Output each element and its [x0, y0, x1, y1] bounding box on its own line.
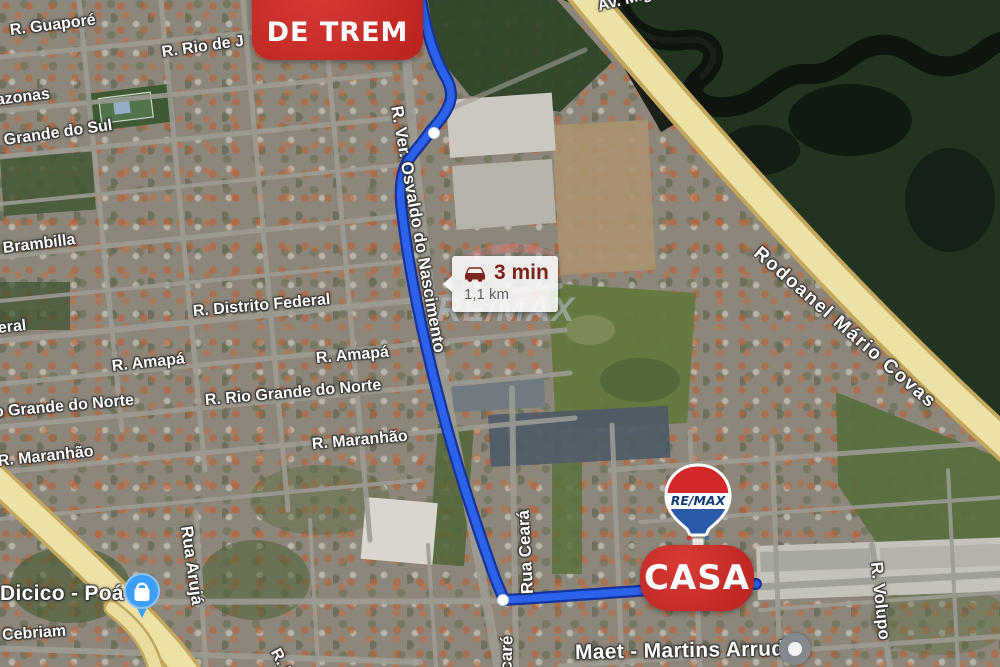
pond: [788, 84, 912, 156]
destination-badge-label: CASA: [644, 558, 750, 598]
route-waypoint-dot: [429, 128, 440, 139]
tooltip-tail: [443, 276, 452, 292]
route-duration: 3 min: [494, 261, 549, 285]
map-art: [0, 0, 1000, 667]
transit-circle-icon[interactable]: [779, 633, 811, 665]
route-tooltip[interactable]: 3 min 1,1 km: [452, 256, 558, 312]
car-icon: [462, 264, 488, 282]
route-waypoint-dot: [498, 595, 509, 606]
transit-circle-inner: [788, 642, 802, 656]
origin-badge-label: DE TREM: [252, 17, 423, 48]
shopping-bag-icon[interactable]: [122, 572, 162, 620]
destination-badge[interactable]: CASA: [640, 545, 754, 611]
route-distance: 1,1 km: [464, 286, 550, 303]
origin-badge[interactable]: Ç DE TREM: [252, 0, 423, 60]
balloon-brand-text: RE/MAX: [671, 493, 727, 508]
sports-field: [86, 84, 174, 132]
remax-balloon-icon[interactable]: RE/MAX: [656, 462, 740, 556]
map-canvas[interactable]: R. GuaporéR. Rio de JazonasGrande do Sul…: [0, 0, 1000, 667]
